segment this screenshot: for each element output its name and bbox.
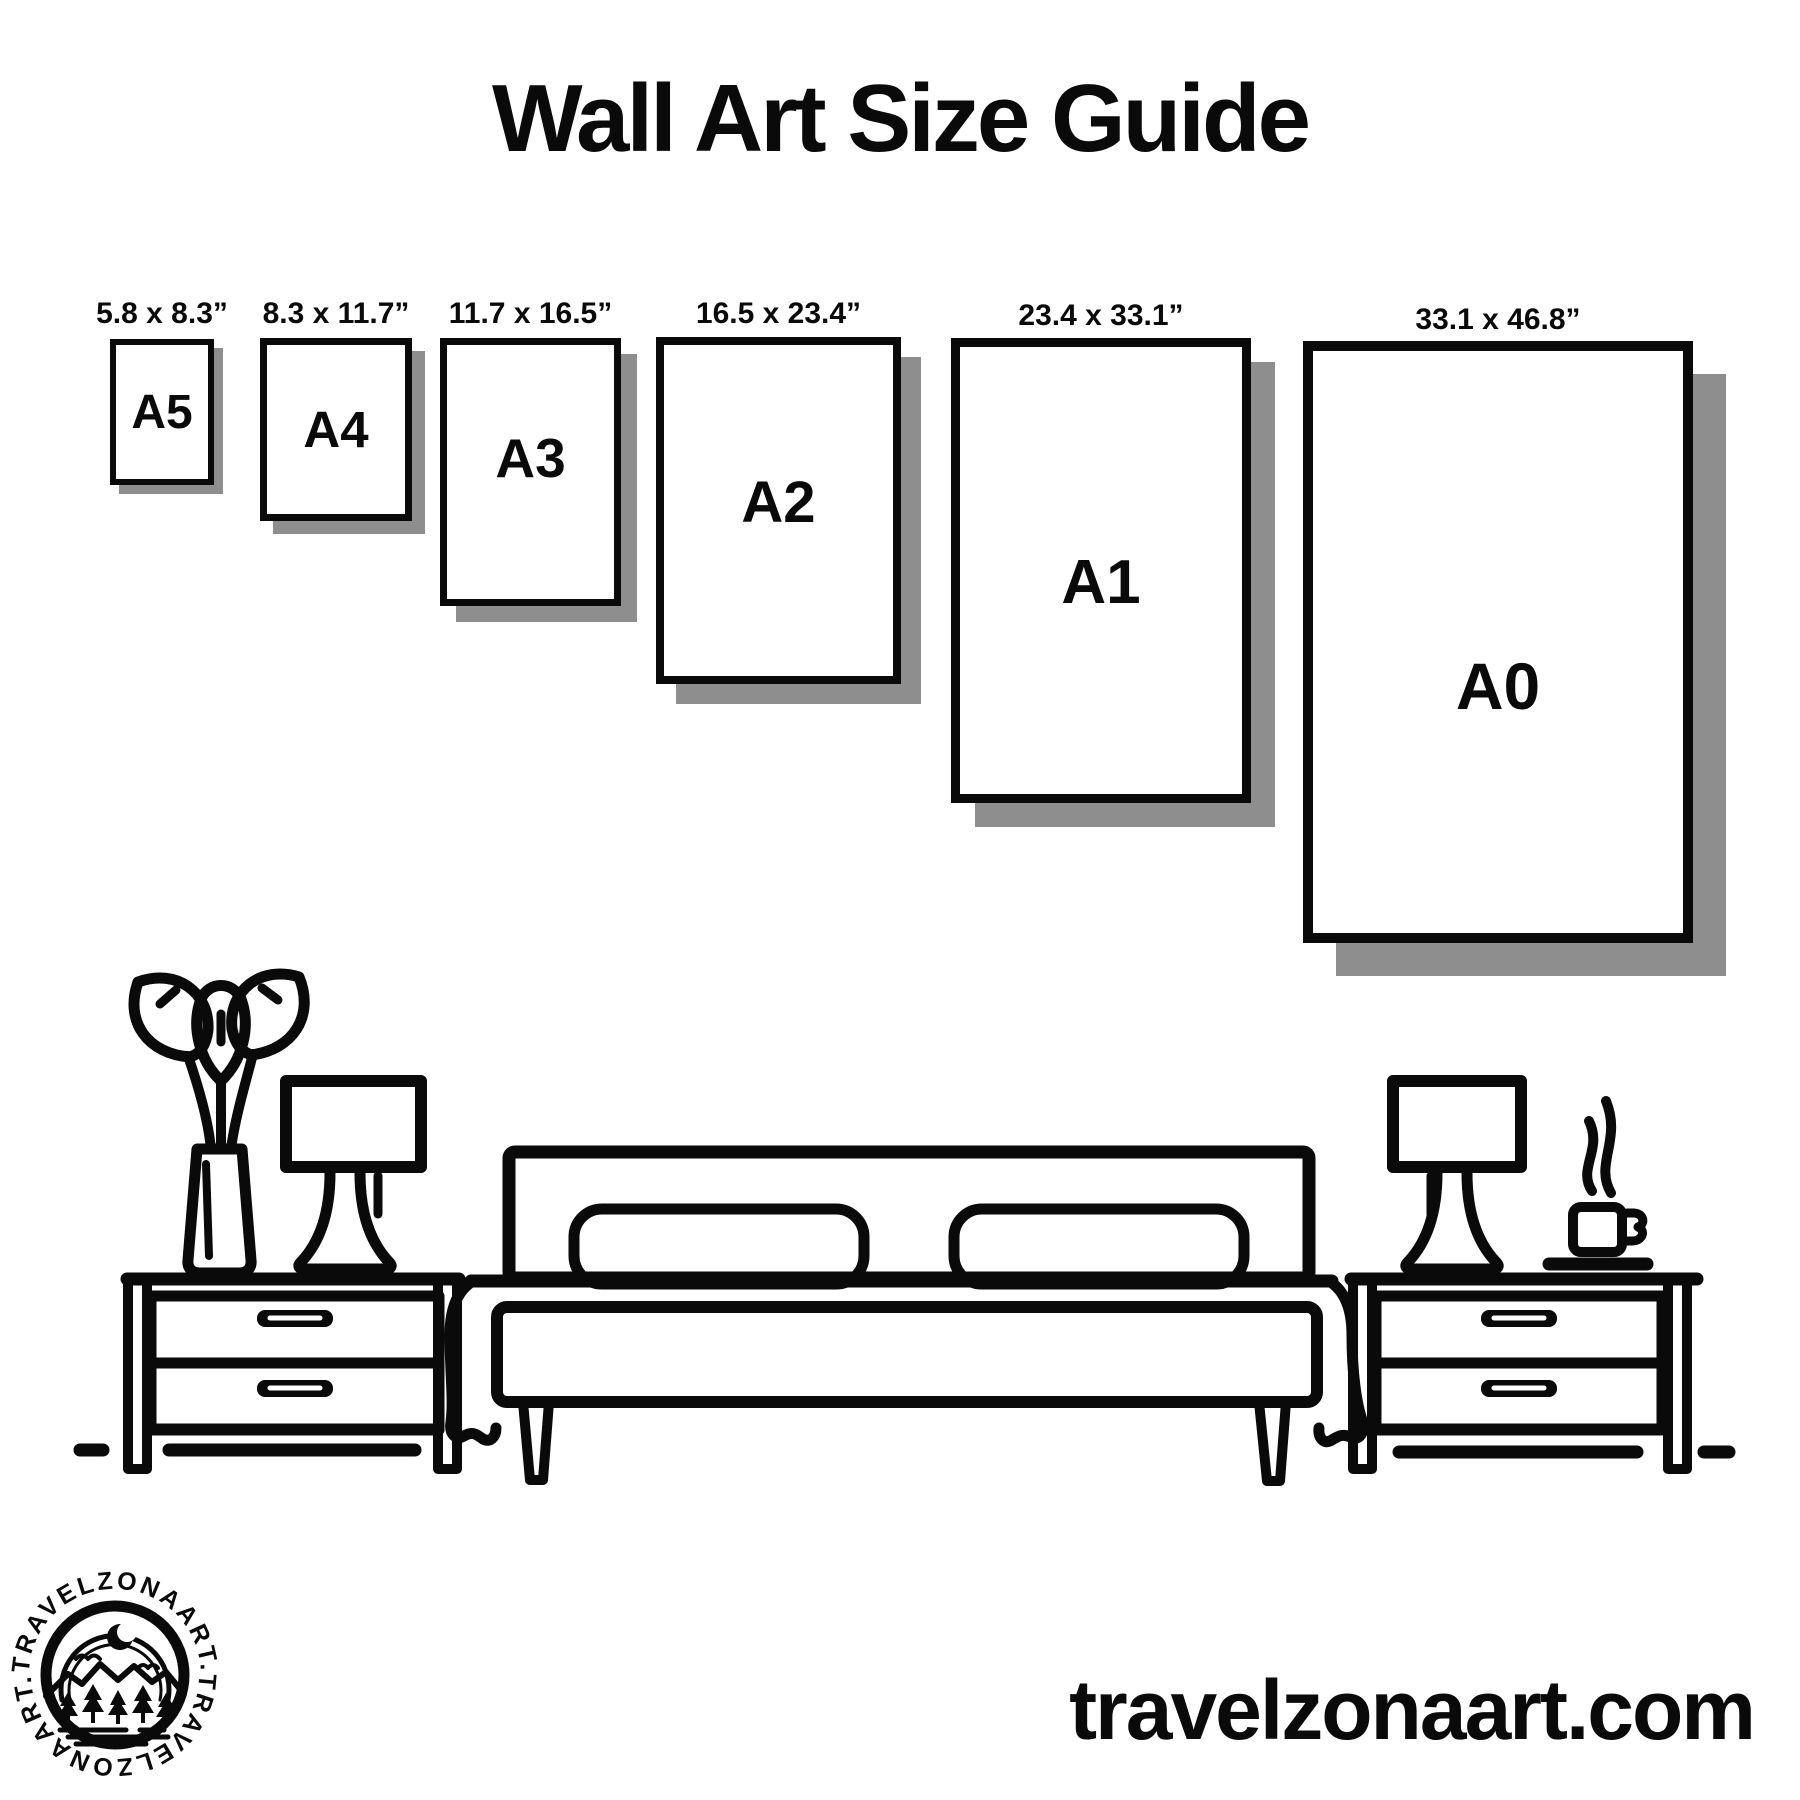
brand-logo: TRAVELZONAART. TRAVELZONAART. [7,1566,223,1781]
logo-text-top: TRAVELZONAART. [7,1566,223,1674]
plant [134,974,304,1273]
steam-icon [1605,1101,1611,1193]
bedroom-scene: TRAVELZONAART. TRAVELZONAART. [0,0,1800,1800]
cup-handle [1627,1213,1643,1241]
bird-icon [138,1665,158,1668]
floor-line [80,1450,1729,1452]
leaf-vein [262,988,278,1000]
water-dashes [60,1730,168,1744]
bed-leg [523,1402,549,1480]
nightstand-leg [1668,1279,1687,1469]
vase [188,1149,251,1273]
steam-icon [1587,1121,1593,1191]
bed-frame-front [497,1307,1317,1402]
nightstand-leg [128,1279,147,1469]
lamp-shade [1393,1081,1521,1167]
lamp-base [1406,1173,1498,1269]
bed-leg [1259,1402,1286,1481]
headboard [509,1152,1309,1278]
bird-icon [76,1656,100,1660]
right-table-lamp [1393,1081,1521,1269]
logo-dome-arc [69,1644,161,1700]
vase-detail-line [206,1164,209,1256]
logo-text-bottom: TRAVELZONAART. [9,1673,222,1782]
lamp-shade [286,1081,421,1167]
right-nightstand [1351,1279,1697,1469]
leaf-vein [160,990,176,1004]
moon-icon [117,1622,137,1642]
pine-trees-icon [58,1684,176,1724]
left-table-lamp [286,1081,421,1269]
coffee-cup [1549,1101,1647,1264]
website-url: travelzonaart.com [1069,1662,1754,1759]
left-nightstand [127,1279,459,1469]
bed [450,1152,1363,1481]
cup-body [1573,1207,1622,1252]
